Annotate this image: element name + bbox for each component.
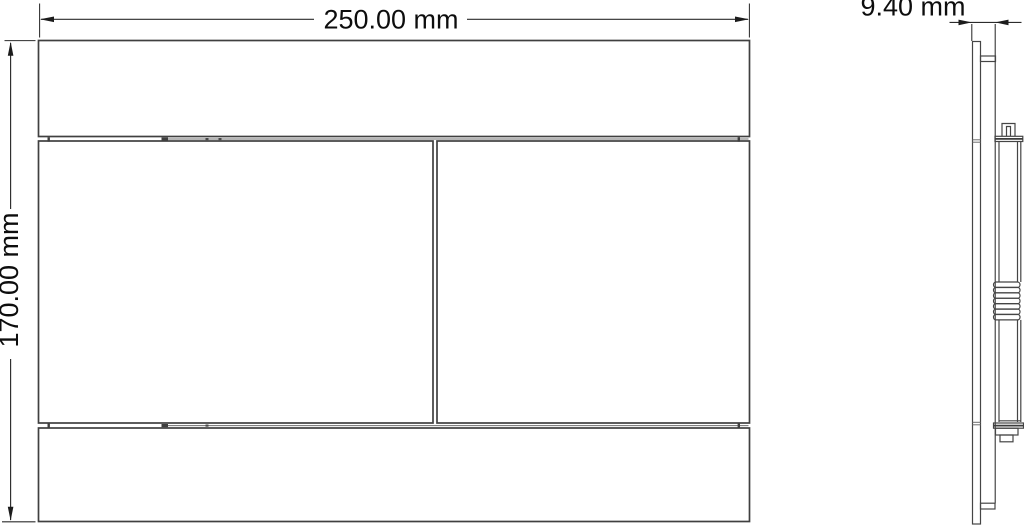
threaded-section (994, 282, 1021, 320)
screw-head-outline (1002, 124, 1015, 137)
thread-rib (994, 282, 1021, 288)
width-dimension: 250.00 mm (40, 4, 750, 38)
thread-rib (994, 304, 1021, 310)
actuator-barrel-lower (999, 320, 1021, 422)
thread-rib (994, 309, 1021, 315)
plate-top-panel (39, 41, 750, 137)
top-mounting-tab (981, 56, 996, 62)
screw-slot (1007, 127, 1011, 137)
lower-seam-tick-a (206, 425, 209, 427)
height-dimension: 170.00 mm (0, 41, 36, 522)
flush-plate-drawing: 250.00 mm 170.00 mm 9.40 mm (0, 0, 1024, 527)
lock-nut-step1 (996, 428, 1019, 435)
upper-seam-right-clip (738, 137, 740, 141)
upper-seam-tick-b (219, 138, 222, 140)
flush-button-right (437, 141, 750, 423)
width-arrow-left (40, 17, 54, 23)
depth-dimension-label: 9.40 mm (860, 0, 965, 22)
lower-seam-clip (162, 424, 169, 427)
height-arrow-down (8, 507, 14, 521)
actuator-barrel-upper (999, 142, 1021, 283)
width-dimension-label: 250.00 mm (323, 5, 458, 35)
side-plate-profile (973, 42, 981, 525)
front-view (39, 41, 750, 522)
side-plate-seam-ticks (973, 140, 981, 425)
upper-seam-left-clip (48, 137, 50, 141)
thread-rib (994, 314, 1021, 320)
technical-drawing-canvas: 250.00 mm 170.00 mm 9.40 mm (0, 0, 1024, 527)
thread-rib (994, 287, 1021, 293)
side-view (973, 24, 1024, 524)
thread-rib (994, 298, 1021, 304)
upper-flange (995, 136, 1023, 141)
upper-seam-tick-a (206, 138, 209, 140)
flush-button-left (39, 141, 434, 423)
depth-dimension: 9.40 mm (860, 0, 1021, 41)
lower-flange (994, 423, 1024, 442)
width-arrow-right (735, 17, 749, 23)
lower-seam-left-clip (48, 423, 50, 428)
height-arrow-up (8, 42, 14, 56)
thread-rib (994, 293, 1021, 299)
depth-arrow-right (995, 20, 1008, 26)
upper-seam-clip (162, 138, 169, 141)
bottom-mounting-tab (981, 503, 996, 509)
adjustment-screw (1002, 124, 1015, 137)
lock-nut-step2 (1000, 435, 1013, 442)
height-dimension-label: 170.00 mm (0, 212, 24, 347)
lower-seam-right-clip (738, 423, 740, 428)
plate-bottom-panel (39, 428, 750, 522)
